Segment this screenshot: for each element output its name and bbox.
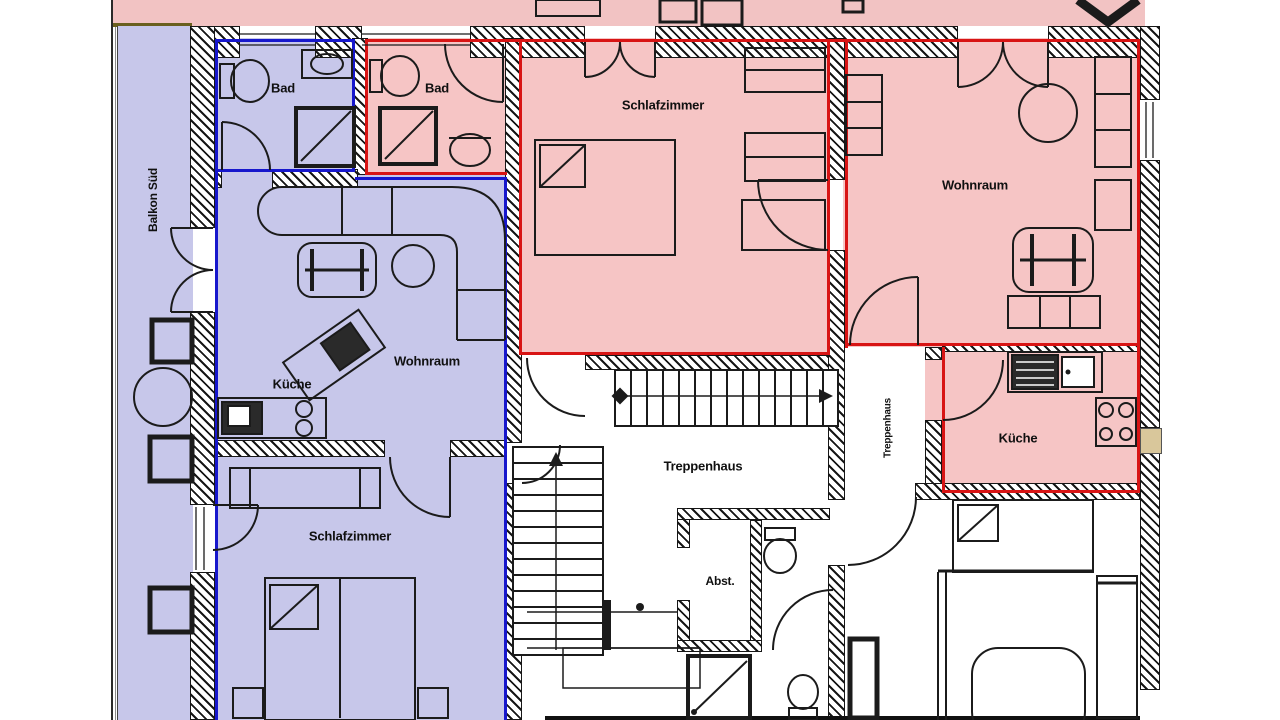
north-marker-icon (1078, 0, 1138, 22)
cutoff-shapes-top (536, 0, 1138, 25)
stairs-upper (613, 370, 838, 426)
livingroom-blue-furniture (258, 187, 505, 340)
bathroom-red-fixtures (370, 44, 503, 166)
label-kueche-blue: Küche (273, 377, 312, 392)
label-treppenhaus-side: Treppenhaus (883, 398, 894, 458)
window-glazing-lines (196, 34, 1153, 570)
label-bad-red: Bad (425, 81, 449, 96)
label-schlafzimmer-red: Schlafzimmer (622, 98, 704, 113)
stairs-lower (513, 447, 700, 688)
label-wohnraum-red: Wohnraum (942, 178, 1008, 193)
bedroom-red-furniture (535, 42, 828, 255)
bedroom-blue-furniture (230, 457, 450, 720)
floor-plan: Balkon Süd Bad Bad Schlafzimmer Wohnraum… (0, 0, 1280, 720)
label-balcony: Balkon Süd (146, 168, 160, 232)
storage-wc-fixtures (688, 528, 877, 720)
kitchen-blue-fixtures (218, 310, 385, 438)
kitchen-red-fixtures (943, 352, 1136, 446)
label-abstellraum: Abst. (705, 574, 734, 588)
label-kueche-red: Küche (999, 431, 1038, 446)
label-schlafzimmer-blue: Schlafzimmer (309, 529, 391, 544)
label-bad-blue: Bad (271, 81, 295, 96)
bathroom-blue-fixtures (220, 50, 354, 170)
bottom-right-apartment-furniture (938, 500, 1137, 720)
label-wohnraum-blue: Wohnraum (394, 354, 460, 369)
label-treppenhaus-main: Treppenhaus (664, 459, 743, 474)
